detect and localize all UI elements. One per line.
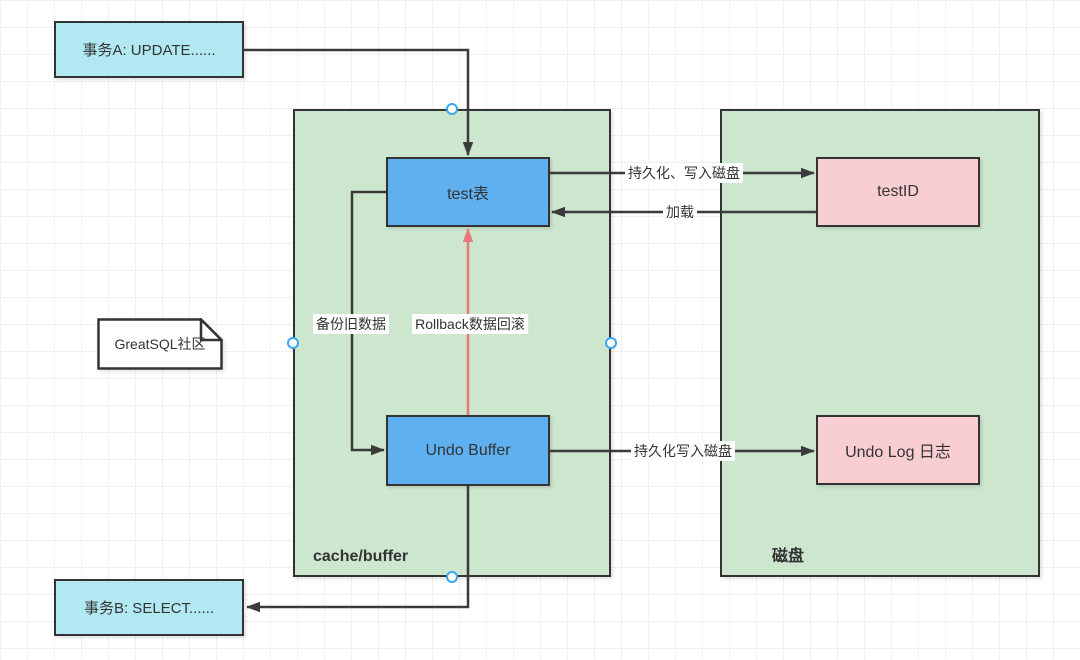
test-table-box[interactable]: test表 [386,157,550,227]
transaction-b-label: 事务B: SELECT...... [84,597,214,618]
note-shape[interactable]: GreatSQL社区 [97,318,223,370]
edge-label-rollback: Rollback数据回滚 [412,314,528,334]
edge-label-load: 加载 [663,202,697,222]
note-label: GreatSQL社区 [97,318,223,370]
edge-label-backup-old-data: 备份旧数据 [313,314,389,334]
disk-label: 磁盘 [772,542,804,566]
edge-label-persist-write: 持久化、写入磁盘 [625,163,743,183]
undo-log-box[interactable]: Undo Log 日志 [816,415,980,485]
transaction-a-label: 事务A: UPDATE...... [82,39,215,60]
transaction-a-box[interactable]: 事务A: UPDATE...... [54,21,244,78]
undo-buffer-box[interactable]: Undo Buffer [386,415,550,486]
undo-log-label: Undo Log 日志 [845,438,951,462]
test-table-label: test表 [447,180,489,204]
undo-buffer-label: Undo Buffer [425,442,510,460]
test-id-box[interactable]: testID [816,157,980,227]
cache-buffer-label: cache/buffer [313,548,408,566]
test-id-label: testID [877,183,919,201]
diagram-canvas: cache/buffer 磁盘 GreatSQL社区 事务A: UPDATE..… [0,0,1080,660]
edge-label-persist-write-disk: 持久化写入磁盘 [631,441,735,461]
transaction-b-box[interactable]: 事务B: SELECT...... [54,579,244,636]
